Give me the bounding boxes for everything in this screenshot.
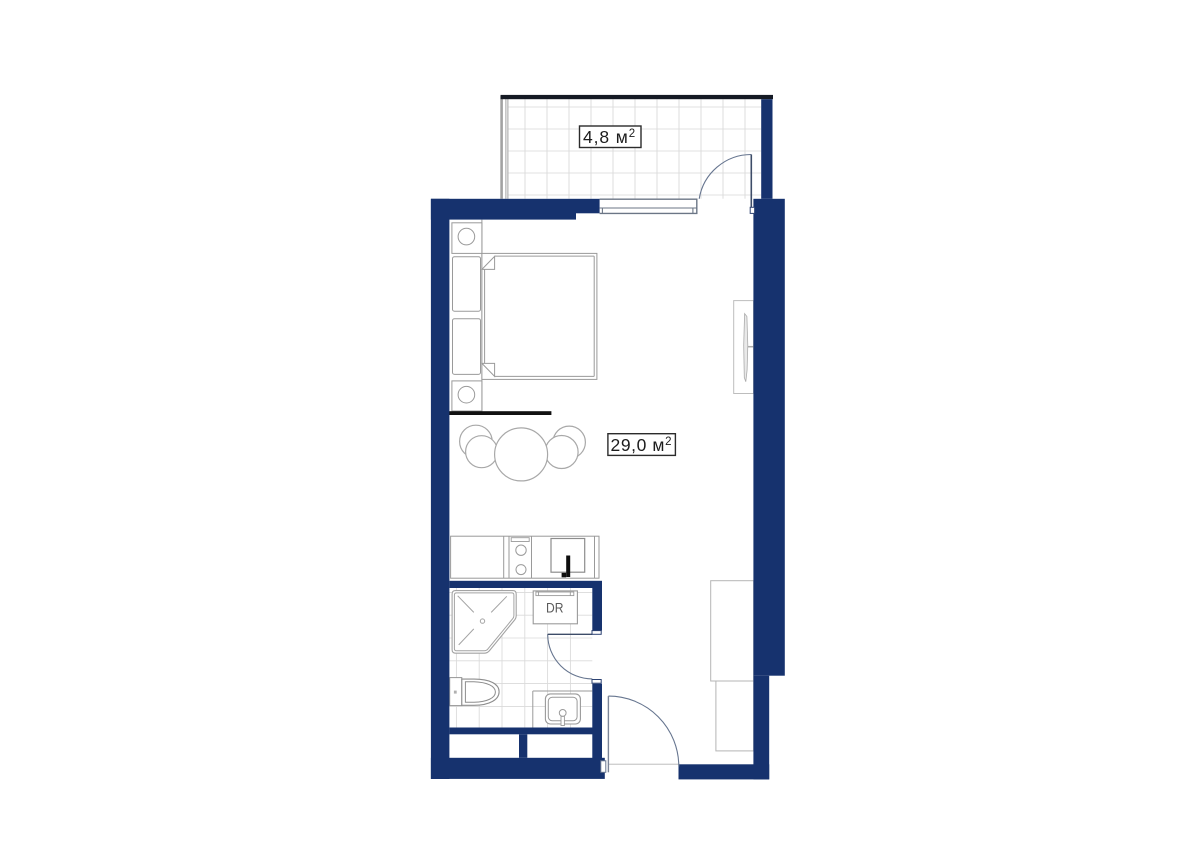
svg-text:DR: DR — [546, 600, 564, 616]
svg-text:29,0 м2: 29,0 м2 — [611, 435, 673, 455]
svg-text:4,8 м2: 4,8 м2 — [583, 127, 636, 147]
